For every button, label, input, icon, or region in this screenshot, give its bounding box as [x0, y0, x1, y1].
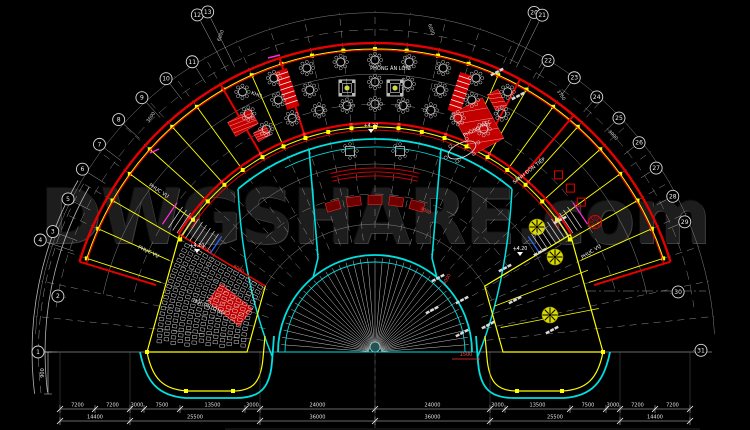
dim-value: 900 — [40, 368, 46, 378]
seat — [206, 337, 211, 341]
chair — [270, 98, 273, 101]
seat-rect — [178, 272, 183, 277]
chair — [312, 84, 315, 87]
chair — [367, 80, 370, 83]
dim-value: 3000 — [131, 403, 144, 409]
chair — [236, 95, 239, 98]
radial-grid-line — [584, 102, 593, 112]
seat — [187, 289, 192, 293]
wing-outline — [476, 336, 610, 398]
column-node — [505, 168, 509, 172]
dim-value: 25500 — [187, 415, 203, 421]
radial-grid-line — [80, 262, 157, 285]
tag — [520, 92, 525, 96]
chair — [235, 90, 238, 93]
seat-rect — [194, 318, 199, 322]
dim-value: 7500 — [156, 403, 169, 409]
chair — [272, 70, 275, 73]
column-corner — [400, 80, 403, 83]
chair — [369, 98, 372, 101]
seat — [222, 277, 228, 282]
seat-rect — [165, 326, 170, 330]
grid-bubble-number: 29 — [681, 219, 689, 226]
seat — [251, 281, 257, 286]
seat — [241, 344, 246, 347]
seat-rect — [203, 311, 208, 315]
tag — [554, 326, 559, 330]
seat — [193, 324, 198, 328]
chair — [286, 121, 289, 124]
chair — [301, 71, 304, 74]
column-core — [393, 86, 398, 91]
dim-value: 3000 — [607, 403, 620, 409]
seat-rect — [222, 277, 228, 282]
radial-grid-line — [211, 18, 235, 66]
chair — [474, 70, 477, 73]
chair — [241, 96, 244, 99]
chair — [269, 123, 272, 126]
seat — [241, 338, 246, 342]
seat-rect — [184, 275, 189, 280]
seat — [180, 317, 185, 321]
seat — [162, 301, 167, 305]
floor-plan-svg: 1234567891011121320212223242526272829303… — [0, 0, 750, 430]
chair — [439, 82, 442, 85]
level-marker-icon — [368, 129, 374, 133]
seat-rect — [199, 339, 204, 342]
column-node — [486, 155, 490, 159]
seat-rect — [179, 291, 184, 295]
column-corner — [339, 93, 342, 96]
seat — [174, 263, 179, 268]
chair — [378, 85, 381, 88]
seat-rect — [186, 326, 191, 330]
chair — [345, 110, 348, 113]
chair — [437, 71, 440, 74]
chair — [443, 84, 446, 87]
seat — [161, 306, 166, 310]
seat-rect — [172, 324, 177, 328]
chair — [313, 113, 316, 116]
seat-rect — [238, 293, 243, 298]
column-node — [303, 136, 307, 140]
grid-bubble-number: 7 — [98, 141, 102, 148]
chair — [411, 78, 414, 81]
ramp-tread — [567, 207, 581, 228]
grid-bubble-number: 31 — [697, 347, 705, 354]
table-top — [504, 88, 512, 96]
chair — [286, 112, 289, 115]
seat — [227, 336, 232, 340]
seat-rect — [192, 341, 197, 344]
chair — [305, 73, 308, 76]
chair — [341, 100, 344, 103]
chair — [401, 98, 404, 101]
wing-outline — [140, 336, 274, 398]
chair — [455, 159, 459, 163]
chair — [378, 98, 381, 101]
seat-rect — [157, 334, 162, 338]
seat — [192, 341, 197, 344]
seat-rect — [243, 283, 249, 288]
chair — [304, 93, 307, 96]
chair — [373, 74, 376, 77]
chair — [429, 103, 432, 106]
seat-rect — [158, 328, 163, 332]
chair — [429, 115, 432, 118]
square-table — [342, 143, 359, 160]
grid-bubble-number: 24 — [593, 94, 601, 101]
seat — [170, 299, 175, 303]
chair — [373, 96, 376, 99]
chair — [406, 108, 409, 111]
seat — [193, 274, 198, 279]
grid-bubble-number: 6 — [81, 166, 85, 173]
seat-rect — [176, 302, 181, 306]
seat — [189, 309, 194, 313]
chair — [479, 72, 482, 75]
seat — [213, 340, 218, 343]
radial-grid-line — [59, 234, 77, 241]
seat — [216, 318, 221, 322]
room-label: KHO — [250, 90, 262, 99]
seat-rect — [182, 248, 188, 253]
chair — [318, 115, 321, 118]
seat — [167, 310, 172, 314]
chair — [445, 88, 448, 91]
chair — [339, 54, 342, 57]
seat-rect — [195, 268, 201, 273]
seat — [185, 256, 191, 261]
seat-rect — [216, 318, 221, 322]
chair — [506, 96, 509, 99]
seat — [157, 340, 162, 343]
seat-rect — [170, 274, 175, 279]
line — [596, 218, 599, 221]
chair — [414, 60, 417, 63]
seat — [171, 293, 176, 297]
seat — [165, 290, 170, 294]
seat — [178, 272, 183, 277]
chair — [265, 121, 268, 124]
seat — [205, 281, 210, 286]
cad-viewport: DWGSHARE.com 123456789101112132021222324… — [0, 0, 750, 430]
chair — [350, 100, 353, 103]
seat — [179, 328, 184, 332]
seat — [192, 335, 197, 339]
chair — [281, 103, 284, 106]
chair — [406, 100, 409, 103]
chair — [339, 104, 342, 107]
seat — [188, 315, 193, 319]
chair — [494, 112, 497, 115]
site-grid — [32, 11, 714, 429]
seat — [196, 307, 201, 311]
radial-grid-line — [657, 200, 667, 205]
chair — [345, 98, 348, 101]
chair — [505, 116, 508, 119]
grid-bubble-number: 22 — [544, 58, 552, 65]
seat-rect — [200, 328, 205, 332]
seat — [172, 268, 177, 273]
seat — [244, 296, 249, 301]
chair — [446, 71, 449, 74]
ramp-tread — [544, 225, 556, 243]
dim-value: 25500 — [547, 415, 563, 421]
seat — [234, 340, 239, 344]
seat — [182, 306, 187, 310]
wall-node — [397, 123, 400, 126]
chair — [466, 94, 469, 97]
chair — [439, 95, 442, 98]
seat-rect — [241, 338, 246, 342]
seat-rect — [245, 316, 250, 320]
seat-rect — [167, 284, 172, 288]
chair — [412, 56, 415, 59]
chair — [241, 84, 244, 87]
chair — [434, 113, 437, 116]
seat-rect — [189, 284, 194, 289]
seat-rect — [166, 321, 171, 325]
round-table — [333, 54, 349, 70]
column-node — [261, 155, 265, 159]
dim-value: 13500 — [530, 403, 546, 409]
round-table — [299, 60, 315, 76]
seat — [200, 328, 205, 332]
seat-rect — [193, 274, 198, 279]
seat — [243, 283, 249, 288]
chair — [322, 113, 325, 116]
chair — [369, 85, 372, 88]
seat — [206, 342, 211, 345]
chair — [378, 107, 381, 110]
seat-rect — [174, 313, 179, 317]
chair — [253, 112, 256, 115]
column-corner — [352, 80, 355, 83]
seat — [169, 304, 174, 308]
seat — [159, 317, 164, 321]
seat — [178, 339, 183, 342]
dark-seat-block — [325, 200, 341, 213]
column-corner — [387, 80, 390, 83]
chair — [397, 100, 400, 103]
seat-rect — [180, 267, 185, 272]
column-node — [241, 168, 245, 172]
column-node — [206, 199, 210, 203]
seat — [209, 289, 214, 294]
chair — [271, 127, 274, 130]
radial-grid-line — [668, 225, 678, 229]
tag — [455, 333, 460, 337]
dim-value: 13500 — [205, 403, 221, 409]
seat-rect — [242, 327, 247, 331]
wall-node — [527, 180, 530, 183]
seat-rect — [174, 282, 179, 287]
ramp-tread — [194, 225, 206, 243]
round-table — [302, 82, 318, 98]
column-corner — [400, 93, 403, 96]
chair — [506, 84, 509, 87]
room-label: PHÒNG ĂN LỚN — [370, 65, 410, 72]
seat — [191, 279, 196, 284]
seat — [185, 343, 190, 346]
grid-bubble-number: 9 — [140, 95, 144, 102]
seat-rect — [192, 335, 197, 339]
seat — [171, 336, 176, 340]
seat — [203, 311, 208, 315]
dim-value: 3000 — [491, 403, 504, 409]
seat — [176, 277, 181, 282]
chair — [442, 73, 445, 76]
radial-grid-line — [516, 21, 539, 67]
seat-rect — [181, 311, 186, 315]
column-node — [560, 389, 564, 393]
seat-rect — [202, 316, 207, 320]
chair — [333, 60, 336, 63]
seat-rect — [179, 253, 185, 258]
chair — [341, 108, 344, 111]
chair — [474, 83, 477, 86]
chair — [502, 86, 505, 89]
chair — [277, 105, 280, 108]
table-center — [535, 225, 538, 228]
seat-rect — [174, 263, 179, 268]
seat — [177, 258, 183, 263]
seat-rect — [201, 322, 206, 326]
seat — [189, 265, 195, 270]
seat — [239, 274, 245, 279]
ramp-tread — [177, 213, 191, 233]
seat-rect — [325, 200, 341, 213]
red-fixture — [566, 184, 574, 192]
seat-rect — [191, 260, 197, 265]
site-wall-arc — [45, 187, 89, 392]
table-top — [468, 96, 476, 104]
chair — [304, 84, 307, 87]
column-node — [326, 130, 330, 134]
seat — [193, 330, 198, 334]
column-node — [443, 136, 447, 140]
table-top — [427, 106, 435, 114]
curtain-arc — [331, 168, 420, 173]
chair — [510, 86, 513, 89]
chair — [399, 143, 402, 146]
seat-rect — [201, 291, 206, 296]
red-fixture — [554, 171, 562, 179]
radial-grid-line — [589, 258, 663, 282]
tag — [516, 94, 521, 98]
wall-node — [488, 152, 491, 155]
chair — [322, 104, 325, 107]
tag — [464, 329, 469, 333]
seat-rect — [172, 268, 177, 273]
seat — [178, 334, 183, 338]
seat — [223, 316, 228, 320]
chair — [284, 117, 287, 120]
column-node — [420, 130, 424, 134]
seat-rect — [193, 330, 198, 334]
seat — [185, 337, 190, 341]
round-table — [395, 98, 411, 114]
round-table — [423, 103, 439, 119]
seat-rect — [172, 330, 177, 334]
seat — [188, 252, 194, 257]
seat — [179, 291, 184, 295]
seat — [215, 260, 221, 265]
seat — [194, 255, 200, 260]
level-marker-text: +4.20 — [513, 246, 528, 252]
dim-value-red: 1500 — [460, 352, 473, 358]
seat-rect — [195, 288, 200, 293]
radial-grid-line — [486, 316, 714, 340]
seat-rect — [182, 306, 187, 310]
seat-rect — [242, 333, 247, 337]
wall-node — [188, 216, 191, 219]
chair — [308, 82, 311, 85]
radial-grid-line — [170, 84, 182, 99]
seat-rect — [203, 253, 209, 258]
chair — [373, 109, 376, 112]
seat-rect — [240, 288, 246, 293]
chair — [268, 81, 271, 84]
seat — [195, 288, 200, 293]
column-node — [222, 183, 226, 187]
dim-value: 6000 — [216, 29, 226, 42]
column-node — [281, 144, 285, 148]
table-top — [238, 88, 246, 96]
chair — [475, 94, 478, 97]
seat-rect — [175, 308, 180, 312]
grid-bubble-number: 21 — [538, 12, 546, 19]
chair — [245, 95, 248, 98]
table-center — [553, 255, 556, 258]
chair — [295, 121, 298, 124]
seat — [242, 327, 247, 331]
chair — [425, 104, 428, 107]
seat — [182, 248, 188, 253]
chair — [313, 104, 316, 107]
seat — [207, 326, 212, 330]
seat-rect — [346, 196, 361, 207]
seat-rect — [235, 329, 240, 333]
seat-rect — [194, 255, 200, 260]
seat — [158, 323, 163, 327]
grid-bubble-number: 5 — [66, 196, 70, 203]
chair — [406, 150, 409, 153]
seat — [228, 331, 233, 335]
grid-bubble-number: 25 — [615, 115, 623, 122]
grid-bubble-number: 3 — [51, 229, 55, 236]
seat — [184, 300, 189, 304]
seat-rect — [185, 343, 190, 346]
seat — [174, 282, 179, 287]
chair — [308, 95, 311, 98]
chair — [339, 67, 342, 70]
seat — [244, 321, 249, 325]
seat — [212, 265, 218, 270]
seat — [166, 321, 171, 325]
seat-rect — [210, 270, 216, 275]
chair — [349, 143, 352, 146]
radial-grid-line — [594, 262, 671, 285]
ramp-tread — [540, 228, 552, 246]
seat — [240, 288, 246, 293]
seat-rect — [160, 312, 165, 316]
dim-value: 36000 — [425, 415, 441, 421]
stage-hub — [370, 342, 380, 352]
seat-rect — [185, 256, 191, 261]
grid-bubble-number: 23 — [570, 75, 578, 82]
